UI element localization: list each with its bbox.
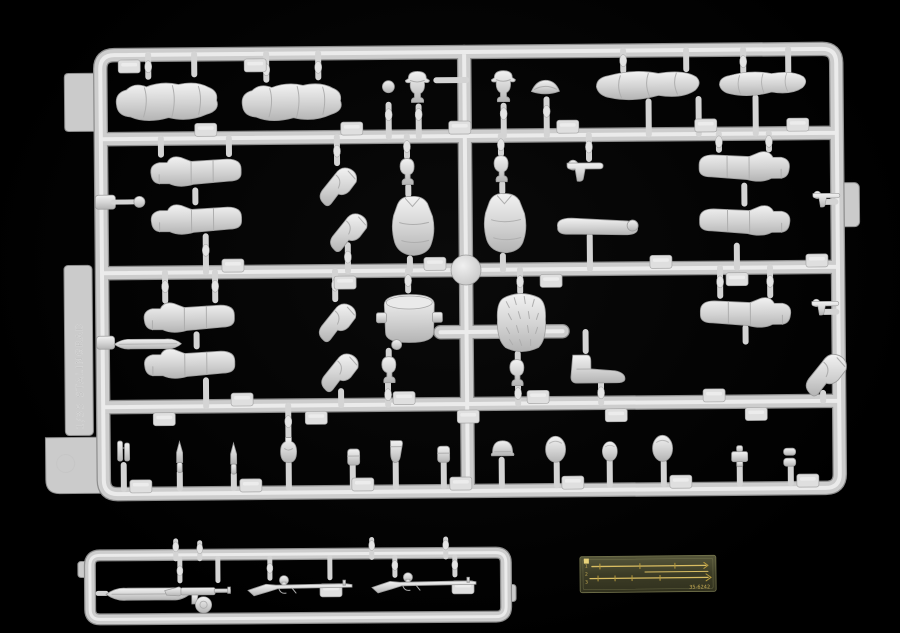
sprue-hub [451,255,481,285]
part-bedroll [719,72,806,96]
part-leg [144,302,235,332]
part-torso [392,196,434,255]
main-sprue: 1/35 STALINGRAD [42,49,862,495]
part-helmet-dome [652,435,672,461]
part-bedroll [596,71,699,100]
part-helmet-dome-small [602,441,617,461]
part-head [400,158,414,184]
sprue-photo: 1/35 STALINGRAD [0,0,900,633]
part-arm [319,304,356,342]
part-valve [95,195,145,209]
part-leg [151,204,242,234]
part-leg [144,348,235,378]
part-leg [699,151,790,181]
part-stacked-lids [784,448,796,466]
part-side-cap [531,80,559,94]
part-leg [151,156,242,186]
sprue-rails [100,49,840,494]
part-bayonet [176,442,182,473]
fret-corner-square [584,559,589,564]
part-arm [321,354,358,392]
part-head-visor-cap [491,71,515,102]
svg-text:3: 3 [585,580,588,586]
part-head [494,156,508,182]
part-steel-helmet [491,441,514,456]
svg-text:1: 1 [585,564,588,570]
part-straight-arm [557,218,638,236]
part-ammo-pouch [348,449,360,465]
weapons-sprue [78,538,517,619]
fret-marking: 35-6242 [689,584,710,590]
part-arm [320,168,357,206]
part-ammo-pouch [438,446,450,462]
fret-strap-short [645,571,708,572]
weapons-parts [106,572,476,613]
tab-bottom-left [45,437,99,493]
part-helmet-dome [545,436,565,462]
photo-canvas: 1/35 STALINGRAD [0,0,900,633]
part-head [510,360,524,386]
part-holster [390,441,402,463]
part-flask [97,336,182,350]
part-fur-pack [497,293,546,351]
part-leg [699,205,790,235]
part-pistol-in-hand [567,160,603,182]
part-flat-canteen [280,438,296,463]
part-belt-buckle [732,446,748,467]
part-torso [484,193,526,252]
part-bayonet [231,443,237,474]
part-greatcoat-body [242,83,341,120]
fret-edge-numbers: 1 2 3 [585,564,588,586]
molded-scale-marking: 1/35 STALINGRAD [74,322,86,429]
part-binoculars [117,441,129,461]
part-ankle-boot [571,355,625,383]
part-head [382,357,396,383]
part-greatcoat-body [116,83,217,121]
svg-text:2: 2 [585,572,588,578]
part-pack-drum [376,294,442,350]
part-leg [700,297,791,327]
part-hand [382,81,394,93]
part-head-field-cap [405,71,429,102]
etched-fret: 1 2 3 35-6242 [580,555,716,592]
